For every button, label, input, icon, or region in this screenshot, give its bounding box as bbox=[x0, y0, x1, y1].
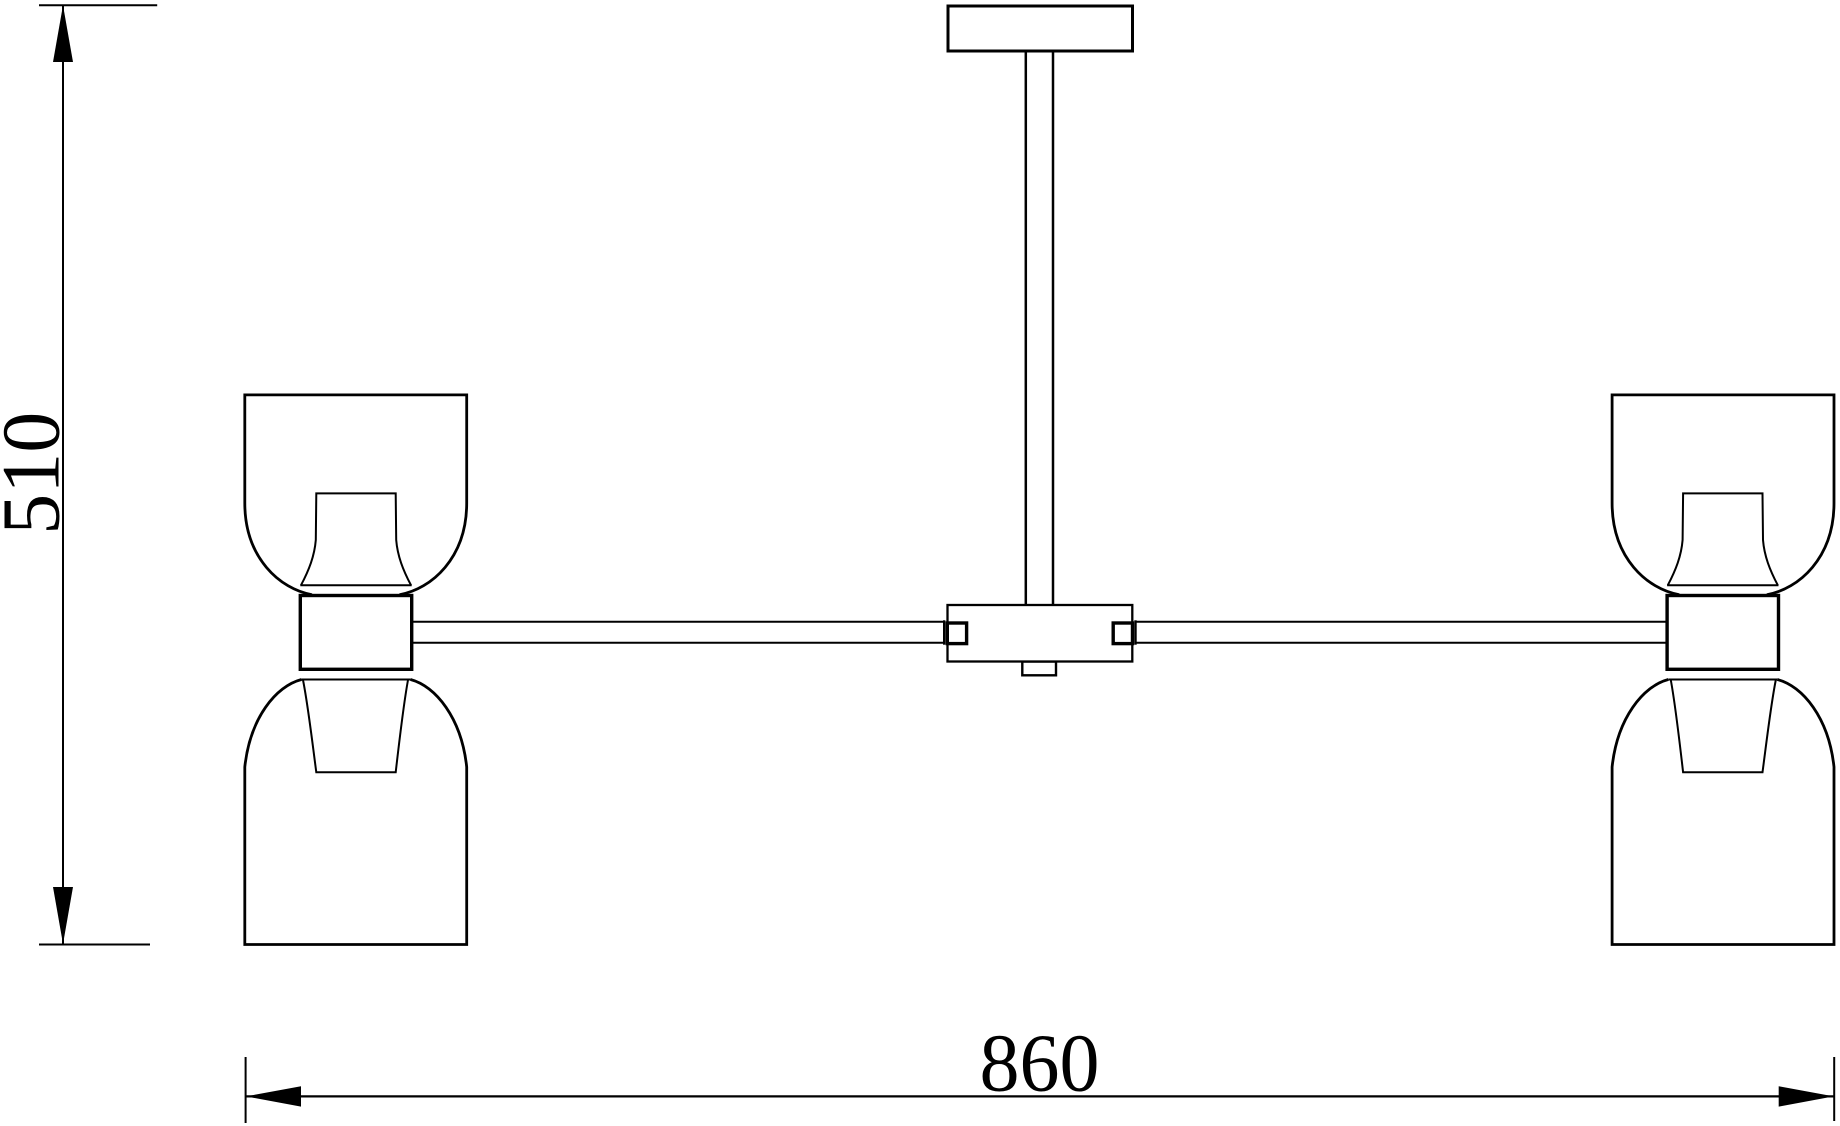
svg-text:510: 510 bbox=[0, 412, 77, 535]
svg-text:860: 860 bbox=[980, 1017, 1100, 1109]
